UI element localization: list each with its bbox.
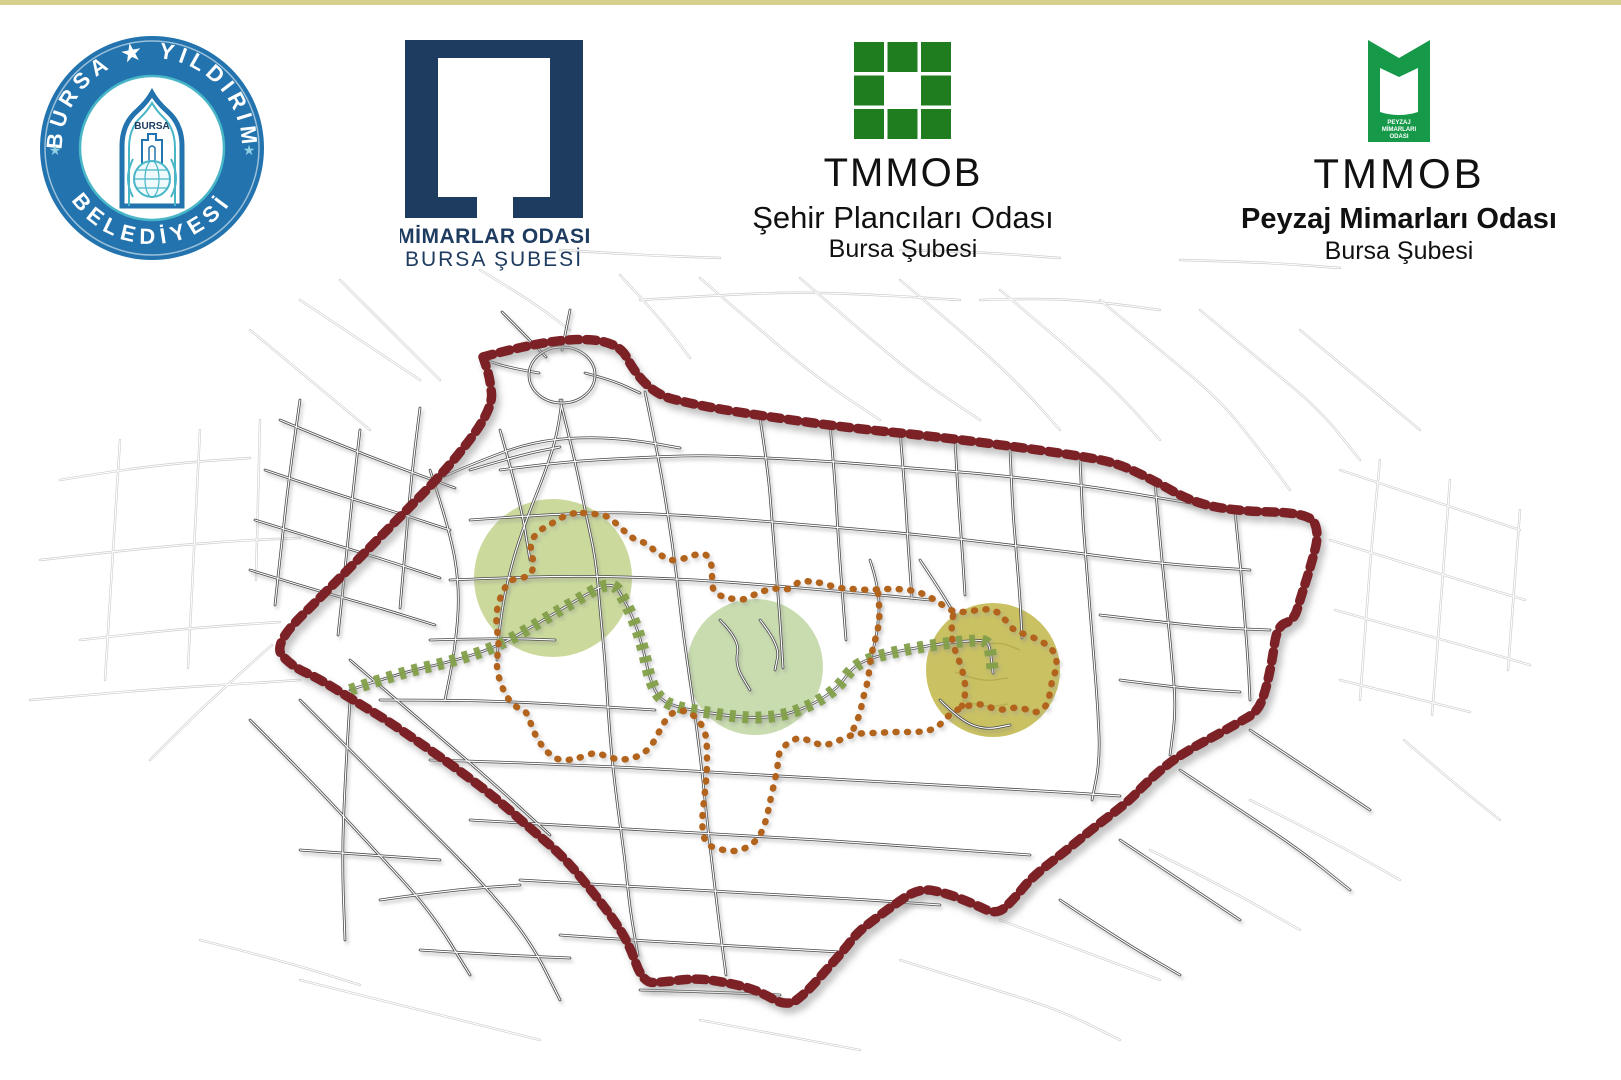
logo1-star-right: ★ xyxy=(243,142,256,158)
pmo-line1: Peyzaj Mimarları Odası xyxy=(1241,203,1557,235)
spo-org: TMMOB xyxy=(824,151,983,195)
focus-circles-layer xyxy=(474,499,1060,737)
pmo-inner1: PEYZAJ xyxy=(1387,120,1410,126)
yildirim-municipality-logo: BURSA ★ YILDIRIM BELEDİYESİ ★ ★ BURSA xyxy=(38,34,266,262)
pmo-line2: Bursa Şubesi xyxy=(1325,237,1474,265)
pmo-inner3: ODASI xyxy=(1389,134,1408,140)
spo-line1: Şehir Plancıları Odası xyxy=(752,200,1054,235)
spo-line2: Bursa Şubesi xyxy=(829,235,978,263)
mimarlar-odasi-logo: MİMARLAR ODASI BURSA ŞUBESİ xyxy=(400,36,590,276)
poster: BURSA ★ YILDIRIM BELEDİYESİ ★ ★ BURSA Mİ… xyxy=(0,0,1621,1080)
mimarlar-line2: BURSA ŞUBESİ xyxy=(405,248,583,271)
mimarlar-line1: MİMARLAR ODASI xyxy=(400,225,590,248)
open-book-icon: PEYZAJ MİMARLARI ODASI xyxy=(1368,40,1430,142)
logo1-center-label: BURSA xyxy=(134,121,170,132)
logo1-star-left: ★ xyxy=(49,142,62,158)
sehir-plancilari-logo: TMMOB Şehir Plancıları Odası Bursa Şubes… xyxy=(733,36,1073,266)
peyzaj-mimarlari-logo: PEYZAJ MİMARLARI ODASI TMMOB Peyzaj Mima… xyxy=(1229,36,1569,268)
pmo-org: TMMOB xyxy=(1313,150,1484,197)
pmo-inner2: MİMARLARI xyxy=(1382,126,1417,133)
green-grid-icon xyxy=(854,42,951,139)
